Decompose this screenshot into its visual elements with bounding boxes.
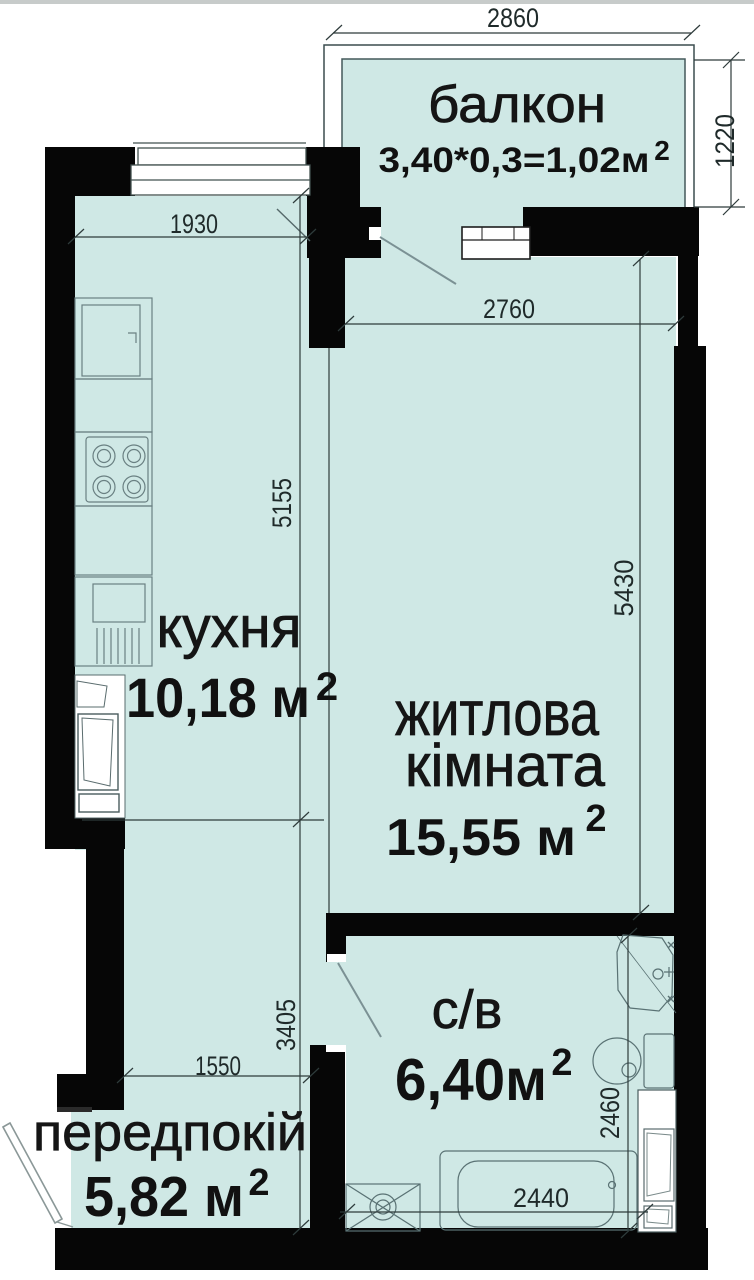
svg-text:5,82 м: 5,82 м bbox=[84, 1165, 244, 1229]
svg-text:6,40м: 6,40м bbox=[395, 1047, 547, 1113]
svg-text:с/в: с/в bbox=[432, 980, 503, 1040]
svg-text:1550: 1550 bbox=[195, 1051, 241, 1081]
svg-text:1220: 1220 bbox=[710, 114, 740, 168]
svg-text:5155: 5155 bbox=[267, 478, 297, 528]
svg-text:2: 2 bbox=[654, 135, 670, 166]
svg-text:2: 2 bbox=[248, 1162, 269, 1204]
svg-text:кухня: кухня bbox=[157, 595, 302, 660]
svg-text:2440: 2440 bbox=[513, 1183, 569, 1213]
svg-text:2460: 2460 bbox=[595, 1087, 625, 1139]
svg-text:2: 2 bbox=[585, 798, 606, 840]
svg-text:2860: 2860 bbox=[487, 3, 539, 33]
svg-text:2760: 2760 bbox=[483, 294, 535, 324]
svg-text:15,55 м: 15,55 м bbox=[386, 809, 576, 867]
svg-text:передпокій: передпокій bbox=[33, 1104, 307, 1162]
svg-text:10,18 м: 10,18 м bbox=[126, 666, 310, 729]
svg-text:3,40*0,3=1,02м: 3,40*0,3=1,02м bbox=[379, 141, 650, 180]
svg-text:балкон: балкон bbox=[428, 76, 606, 134]
svg-text:2: 2 bbox=[551, 1042, 572, 1084]
svg-text:5430: 5430 bbox=[609, 560, 639, 617]
svg-text:3405: 3405 bbox=[271, 999, 301, 1051]
svg-text:1930: 1930 bbox=[170, 209, 218, 239]
svg-text:2: 2 bbox=[316, 665, 338, 709]
svg-text:кімната: кімната bbox=[405, 732, 606, 799]
